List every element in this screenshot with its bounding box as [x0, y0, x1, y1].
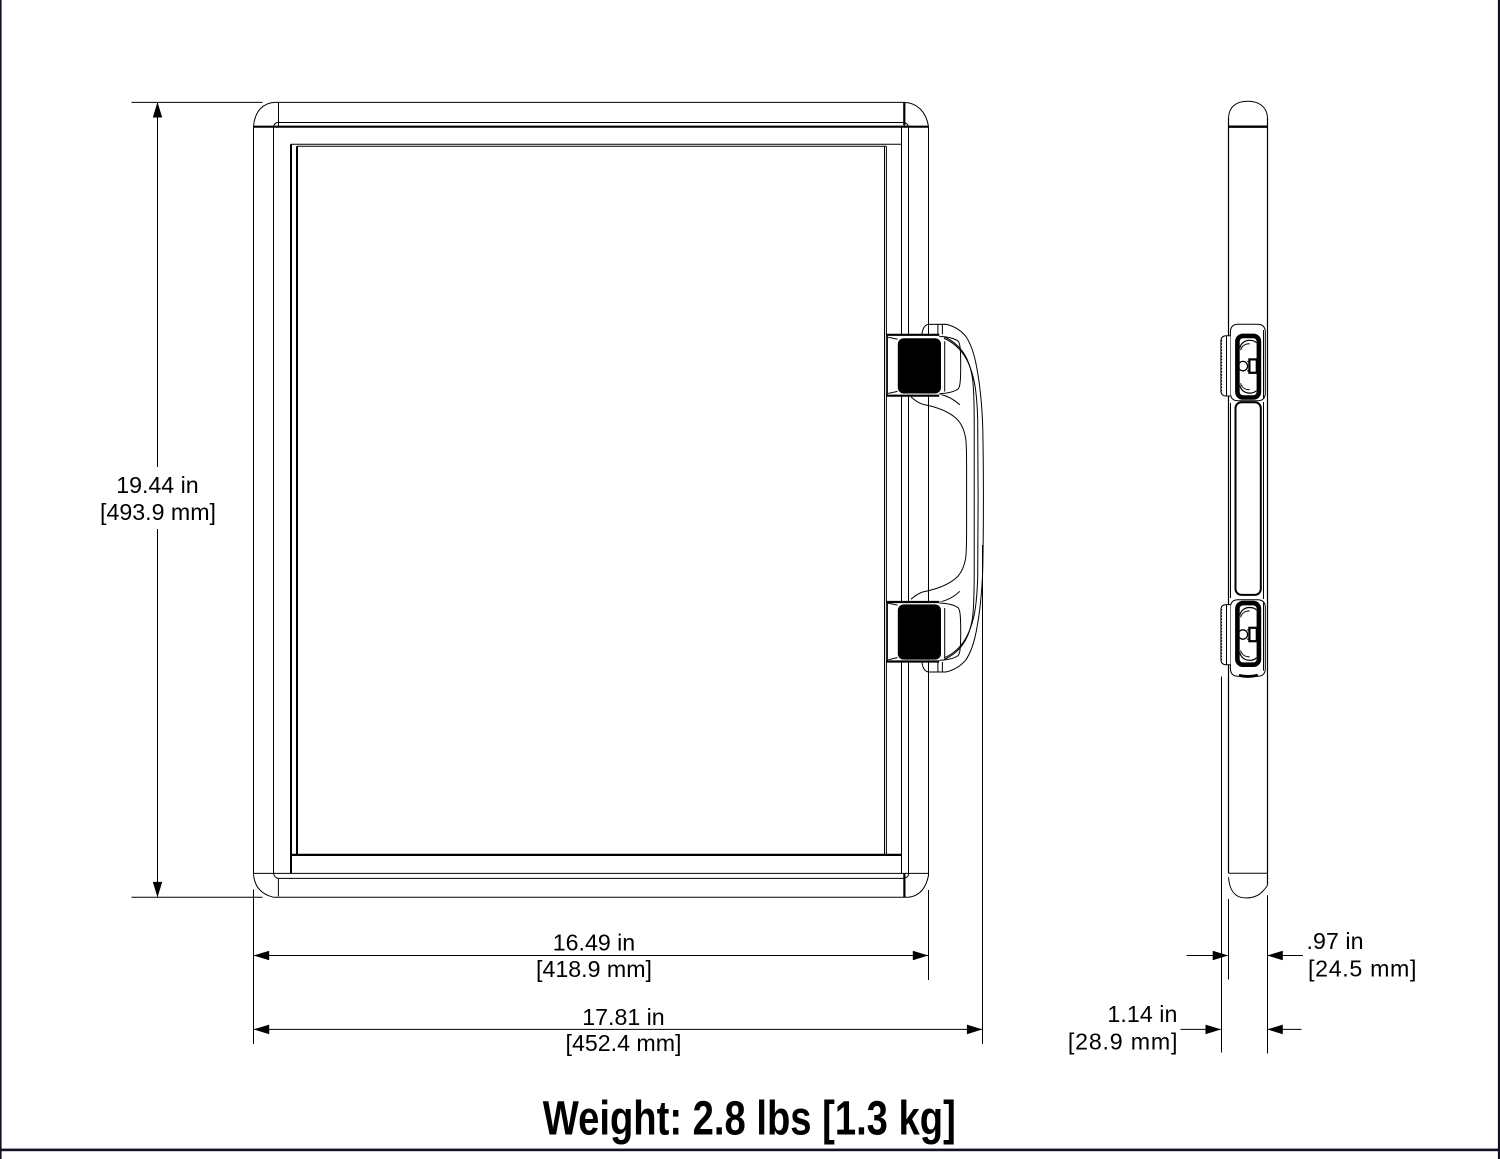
svg-text:17.81 in: 17.81 in	[582, 1004, 664, 1030]
svg-text:[24.5 mm]: [24.5 mm]	[1308, 956, 1417, 982]
svg-text:[418.9 mm]: [418.9 mm]	[536, 956, 652, 982]
svg-text:1.14 in: 1.14 in	[1107, 1001, 1177, 1027]
svg-text:16.49 in: 16.49 in	[553, 930, 635, 956]
svg-text:[452.4 mm]: [452.4 mm]	[566, 1030, 682, 1056]
svg-text:[28.9 mm]: [28.9 mm]	[1068, 1029, 1178, 1055]
svg-text:19.44 in: 19.44 in	[116, 472, 198, 498]
svg-text:.97 in: .97 in	[1307, 928, 1364, 954]
svg-text:Weight: 2.8 lbs [1.3 kg]: Weight: 2.8 lbs [1.3 kg]	[543, 1093, 956, 1146]
svg-text:[493.9 mm]: [493.9 mm]	[100, 499, 216, 525]
